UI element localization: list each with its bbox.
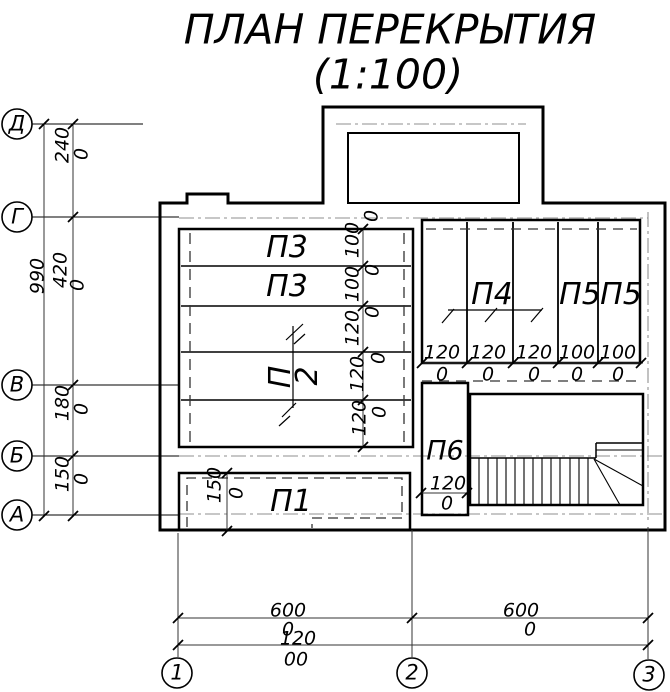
dim-col-3-tail: 0: [528, 366, 540, 385]
dim-col-1-tail: 0: [436, 366, 448, 385]
panel-label-p5-1: П5: [559, 280, 601, 310]
stair-winder-lines: [594, 459, 643, 505]
panel-label-p3-1: П3: [266, 233, 308, 263]
dim-b-a-tail: 0: [73, 473, 92, 485]
panel-label-p3-2: П3: [266, 272, 308, 302]
dim-col-3-main: 120: [516, 344, 552, 363]
dim-row-3-main: 120: [344, 310, 363, 346]
dim-g-v-tail: 0: [69, 279, 88, 291]
dim-row-4-main: 120: [349, 356, 368, 392]
floor-plan-drawing: ПЛАН ПЕРЕКРЫТИЯ (1:100) Д Г В Б А 1 2 3 …: [0, 0, 670, 692]
dim-span2-tail: 0: [524, 621, 536, 640]
dim-total-left: 990: [29, 258, 48, 294]
panel-label-p5-2: П5: [600, 280, 642, 310]
dim-row-3-tail: 0: [364, 306, 383, 318]
stair-treads: [479, 458, 588, 505]
dim-p1-main: 150: [206, 467, 225, 503]
dim-row-4-tail: 0: [370, 352, 389, 364]
dim-col-5-main: 100: [600, 344, 636, 363]
dim-row-5-tail: 0: [371, 406, 390, 418]
dim-v-b-tail: 0: [73, 403, 92, 415]
axis-label-1: 1: [170, 663, 183, 684]
dim-p6-main: 120: [430, 475, 466, 494]
dim-p1-tail: 0: [228, 487, 247, 499]
panel-label-p2-char2: 2: [293, 366, 323, 385]
axis-label-v: В: [10, 375, 24, 396]
roof-opening: [348, 133, 519, 203]
panel-label-p4: П4: [471, 280, 513, 310]
dim-d-g-tail: 0: [73, 148, 92, 160]
dim-col-4-main: 100: [559, 344, 595, 363]
dim-col-2-tail: 0: [482, 366, 494, 385]
drawing-title-line1: ПЛАН ПЕРЕКРЫТИЯ: [184, 10, 597, 51]
axis-label-3: 3: [642, 665, 655, 686]
panel-label-p1: П1: [270, 487, 312, 517]
dim-col-2-main: 120: [470, 344, 506, 363]
dim-bottom-total-main: 120: [280, 630, 316, 649]
dim-col-1-main: 120: [424, 344, 460, 363]
drawing-title-line2: (1:100): [313, 55, 463, 96]
dim-col-4-tail: 0: [571, 366, 583, 385]
dim-p6-tail: 0: [441, 495, 453, 514]
dim-row-2-main: 100: [344, 266, 363, 302]
dim-col-5-tail: 0: [612, 366, 624, 385]
dim-row-2-tail: 0: [364, 264, 383, 276]
axis-label-d: Д: [9, 114, 25, 135]
axis-label-2: 2: [405, 663, 418, 684]
dim-row-1-main: 100: [344, 222, 363, 258]
panel-label-p6: П6: [426, 438, 463, 465]
axis-centerlines: [179, 124, 662, 523]
dim-row-5-main: 120: [351, 400, 370, 436]
dim-bottom-total-tail: 00: [284, 651, 308, 670]
axis-label-a: А: [10, 505, 24, 526]
stairwell: [470, 394, 643, 505]
axis-label-b: Б: [10, 446, 24, 467]
axis-label-g: Г: [11, 207, 23, 228]
dim-row-1-tail: 0: [363, 210, 382, 222]
